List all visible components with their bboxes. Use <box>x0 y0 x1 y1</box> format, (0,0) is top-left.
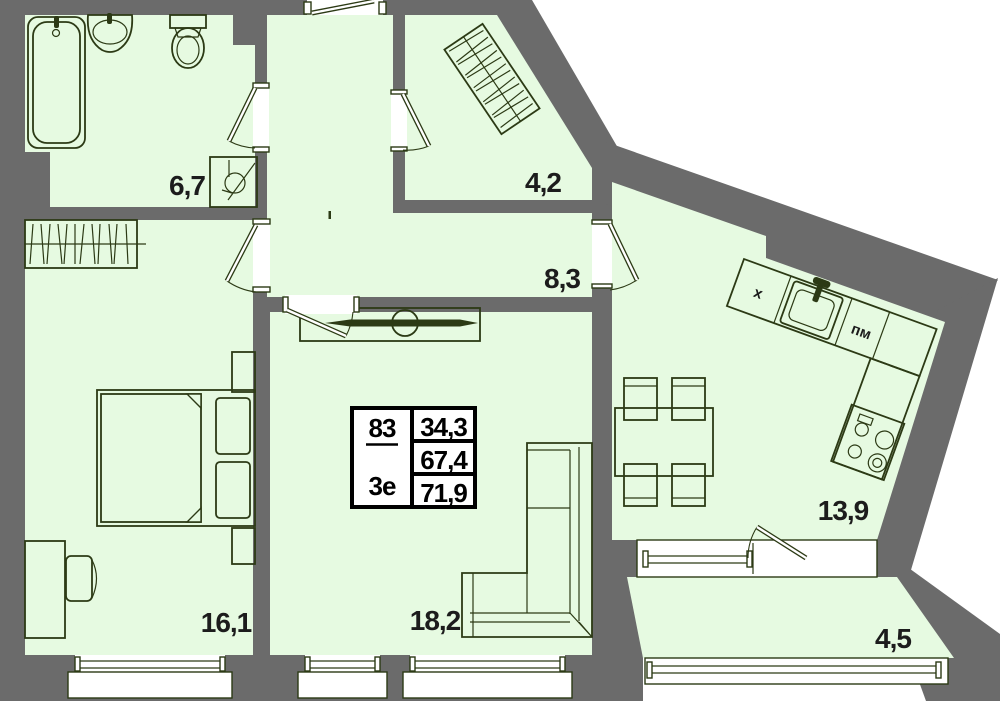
sink-faucet-icon <box>107 13 112 24</box>
balcony-area-label: 4,5 <box>875 623 911 654</box>
tv-screen-icon <box>325 320 478 327</box>
bathroom-area-label: 6,7 <box>169 170 205 201</box>
kitchen-area-label: 13,9 <box>818 495 869 526</box>
floor-plan-canvas: х пм <box>0 0 1000 701</box>
living-room-window-small <box>298 655 387 698</box>
unit-info-box: 83 3е 34,3 67,4 71,9 <box>352 408 475 508</box>
dressing-area-label: 4,2 <box>525 167 561 198</box>
floor-plan: х пм <box>0 0 1000 701</box>
bathroom-floor <box>25 15 255 207</box>
bedroom-area-label: 16,1 <box>201 607 252 638</box>
bedroom-floor <box>25 220 253 655</box>
unit-layout-type: 3е <box>369 471 396 501</box>
balcony-glazing <box>645 658 948 684</box>
entrance-door <box>304 0 386 15</box>
living-area-value: 34,3 <box>420 412 467 442</box>
apartment-area-value: 67,4 <box>420 445 468 475</box>
bedroom-window <box>68 655 232 698</box>
living-room-area-label: 18,2 <box>410 605 461 636</box>
total-area-value: 71,9 <box>420 478 467 508</box>
bathtub-faucet-icon <box>54 16 59 28</box>
hall-area-label: 8,3 <box>544 263 580 294</box>
living-room-window-large <box>403 655 572 698</box>
hall-mark <box>329 211 332 219</box>
unit-number: 83 <box>369 413 396 443</box>
